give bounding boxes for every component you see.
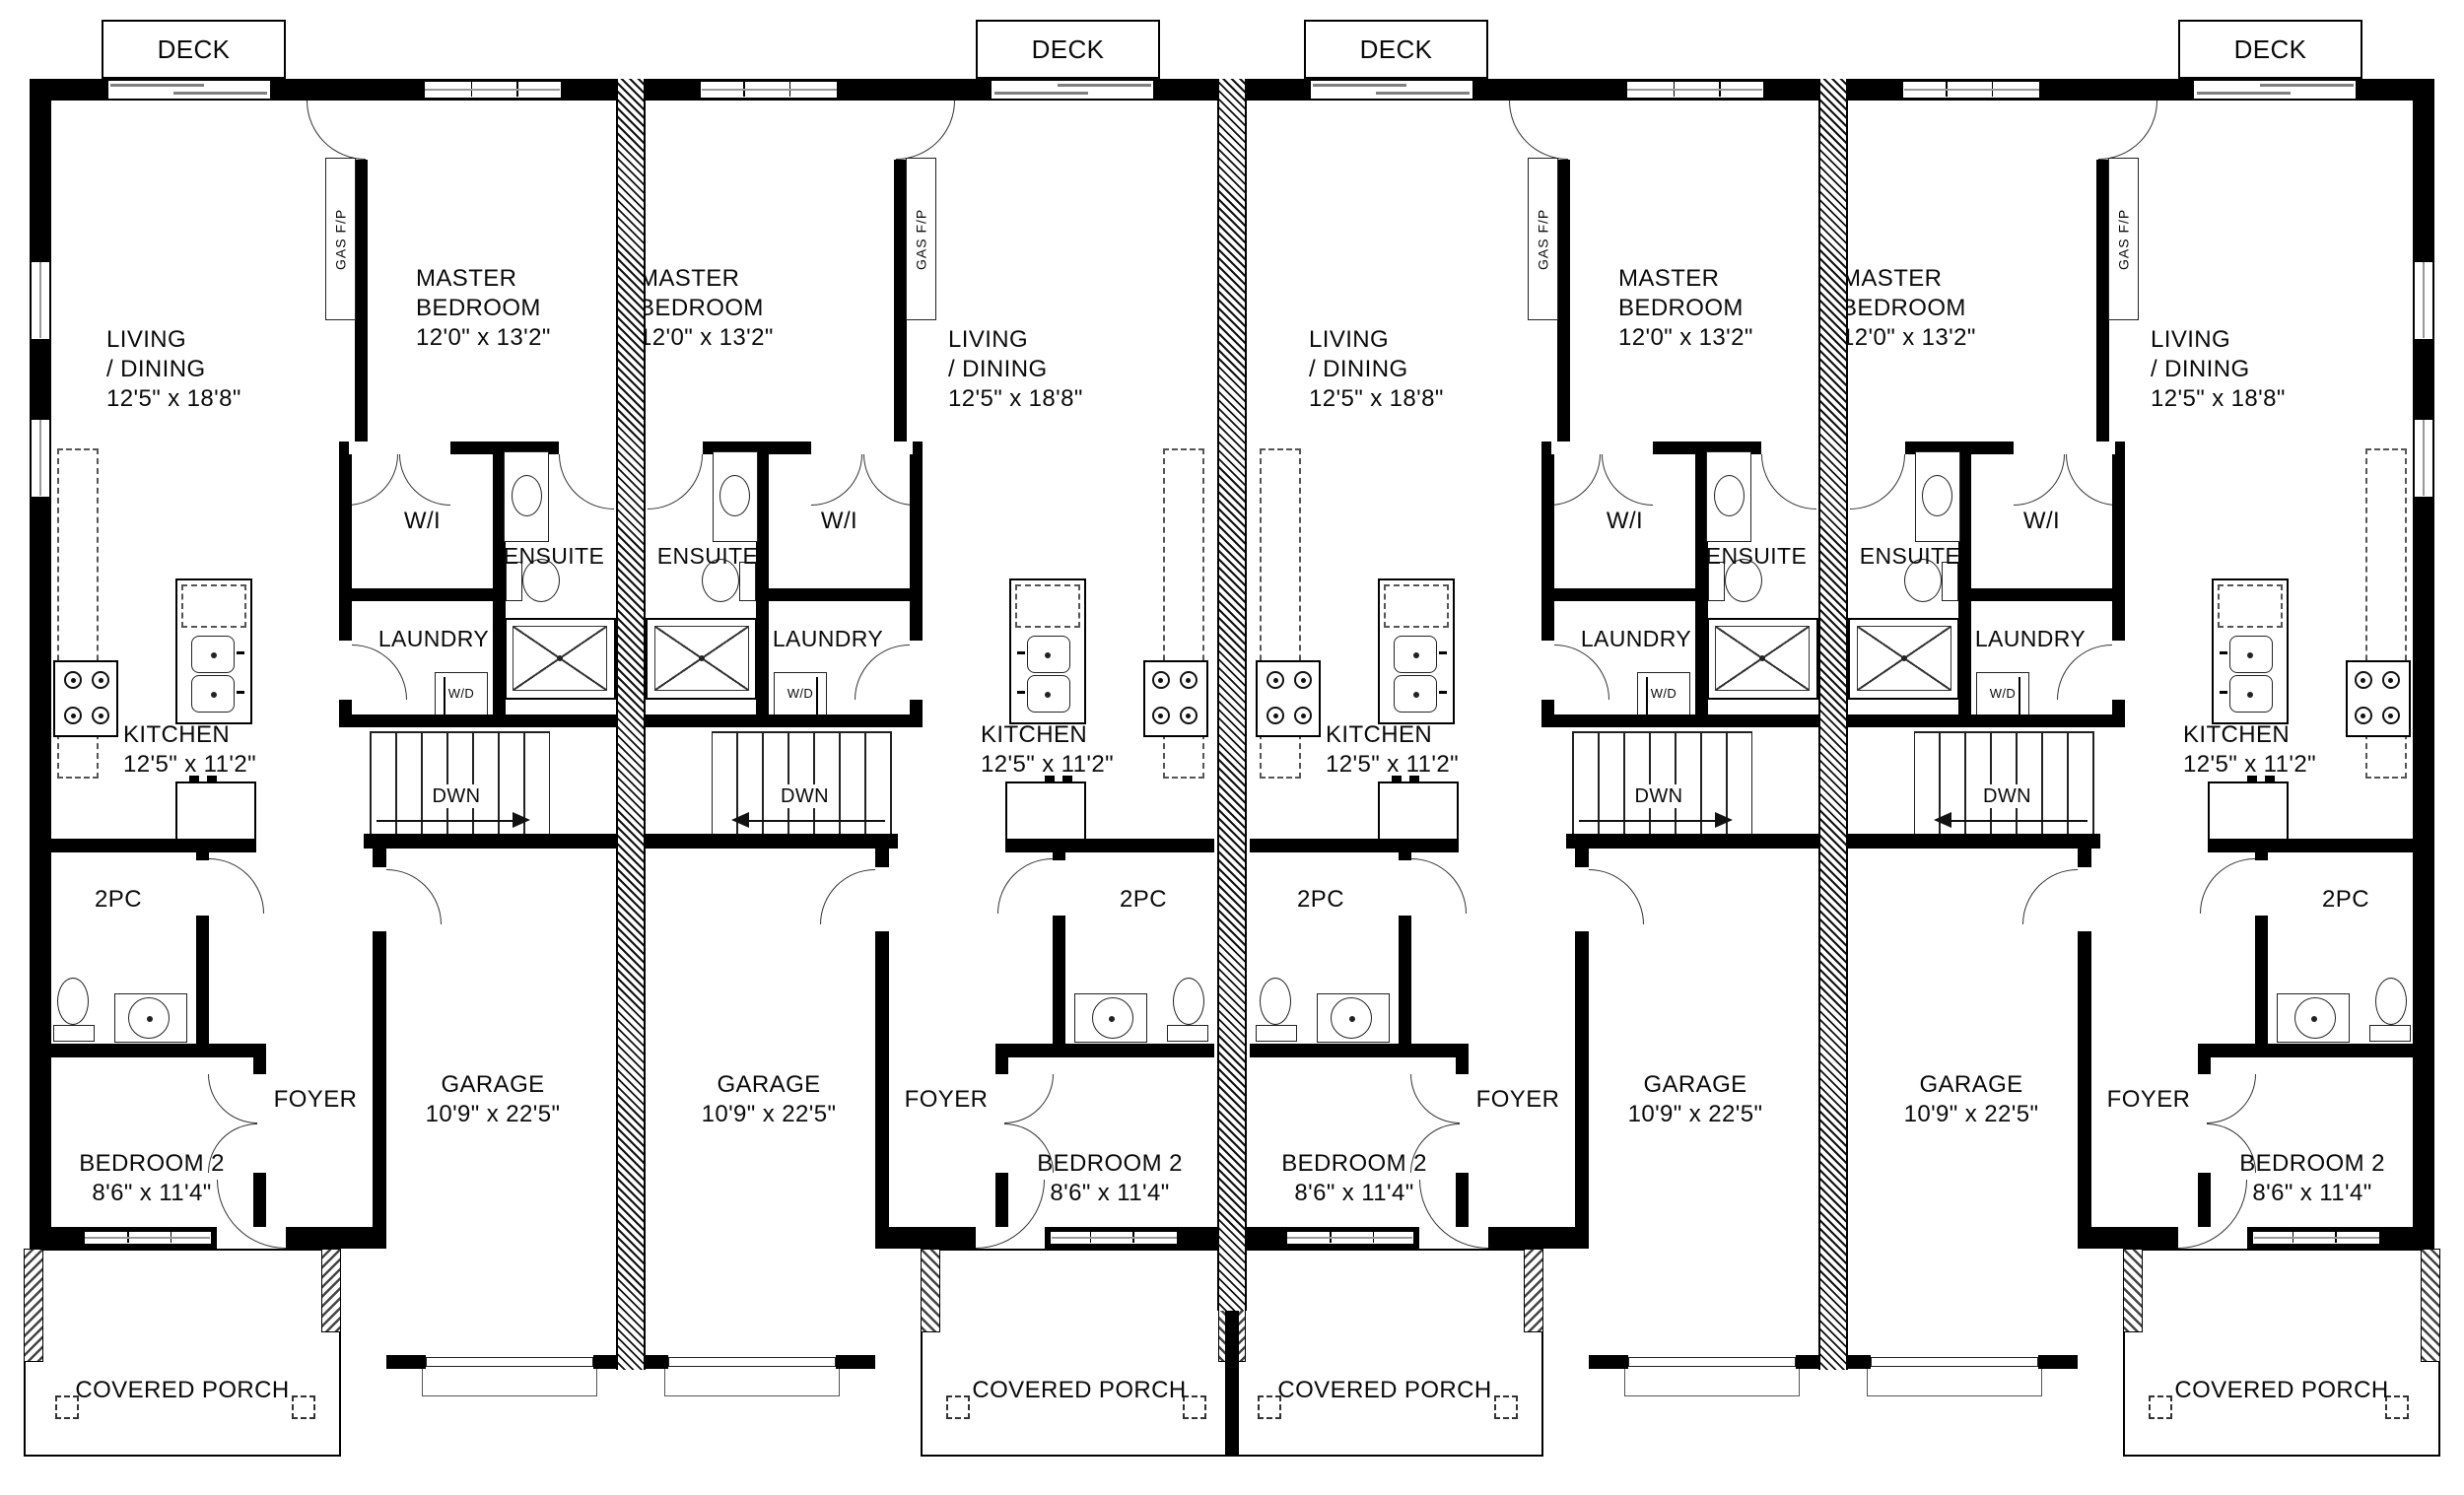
sliding-door	[108, 81, 270, 99]
sink-drain	[1045, 652, 1051, 658]
interior-wall	[646, 834, 898, 849]
room-label-text: KITCHEN	[981, 720, 1138, 750]
room-label-text: 10'9" x 22'5"	[1582, 1100, 1809, 1129]
stove-burner-dot	[99, 678, 103, 683]
door-swing-icon	[648, 454, 703, 510]
stove-burner-icon	[1294, 707, 1312, 724]
sliding-door-panel	[2197, 92, 2291, 95]
door-swing-icon	[1549, 454, 1601, 506]
room-label-ensuite: ENSUITE	[490, 541, 618, 571]
faucet-icon	[2247, 776, 2257, 781]
dwn-arrow-icon	[513, 812, 530, 828]
room-label-text: LAUNDRY	[1567, 624, 1705, 653]
room-label-text: LIVING	[106, 325, 313, 355]
faucet-icon	[1017, 691, 1025, 694]
room-label-text: ENSUITE	[490, 541, 618, 571]
room-label-wd: W/D	[435, 686, 488, 702]
room-label-living: LIVING/ DINING12'5" x 18'8"	[106, 325, 313, 414]
sink-drain	[2311, 1016, 2317, 1022]
room-label-text: BEDROOM	[416, 294, 623, 323]
room-label-wi: W/I	[1971, 507, 2112, 536]
interior-wall	[196, 916, 209, 1044]
room-label-text: / DINING	[1309, 355, 1516, 384]
room-label-text: 12'5" x 18'8"	[106, 384, 313, 414]
dwn-arrow-icon	[376, 820, 513, 822]
toilet-icon	[1167, 1025, 1208, 1042]
shower-icon	[1707, 618, 1818, 700]
room-label-text: W/D	[1976, 686, 2029, 702]
room-label-text: DECK	[102, 34, 286, 64]
door-swing-icon	[863, 454, 915, 506]
window-glass-line	[1287, 1237, 1412, 1239]
sliding-door	[1311, 81, 1472, 99]
interior-wall	[196, 852, 209, 860]
room-label-garage: GARAGE10'9" x 22'5"	[379, 1070, 606, 1129]
room-label-dwn: DWN	[1973, 784, 2042, 808]
gas-fireplace: GAS F/P	[1528, 158, 1558, 320]
gas-fireplace: GAS F/P	[325, 158, 356, 320]
room-label-text: W/I	[352, 507, 493, 536]
stove-icon	[1256, 660, 1321, 737]
room-label-text: W/D	[1637, 686, 1690, 702]
stove-burner-dot	[99, 714, 103, 718]
room-label-text: LIVING	[2151, 325, 2358, 355]
faucet-icon	[207, 776, 217, 781]
interior-wall	[1005, 839, 1214, 852]
sink-drain	[1413, 692, 1419, 698]
sink-drain	[2247, 692, 2253, 698]
faucet-icon	[1439, 651, 1447, 654]
room-label-text: MASTER	[1841, 264, 2048, 294]
window-glass-line	[85, 1237, 210, 1239]
sink-drain	[147, 1016, 153, 1022]
room-label-text: DWN	[1981, 784, 2035, 808]
porch-wall	[24, 1249, 43, 1362]
room-label-master: MASTERBEDROOM12'0" x 13'2"	[1618, 264, 1825, 353]
sink-icon	[1922, 475, 1952, 516]
shower-icon	[505, 618, 616, 700]
door-swing-icon	[820, 869, 875, 924]
covered-porch	[921, 1249, 1238, 1457]
porch-wall	[1524, 1249, 1543, 1332]
interior-wall	[2078, 849, 2091, 867]
room-label-master: MASTERBEDROOM12'0" x 13'2"	[1841, 264, 2048, 353]
room-label-text: 12'0" x 13'2"	[1841, 323, 2048, 353]
room-label-kitchen: KITCHEN12'5" x 11'2"	[2183, 720, 2341, 780]
window	[1286, 1231, 1414, 1245]
room-label-text: 2PC	[1089, 885, 1198, 915]
room-label-text: FOYER	[261, 1085, 370, 1115]
room-label-text: DECK	[1304, 34, 1488, 64]
room-label-wd: W/D	[774, 686, 827, 702]
sink-drain	[1045, 692, 1051, 698]
sink-drain	[1413, 652, 1419, 658]
room-label-wi: W/I	[1554, 507, 1695, 536]
window-glass-line	[425, 89, 560, 91]
interior-wall	[339, 454, 352, 641]
room-label-living: LIVING/ DINING12'5" x 18'8"	[948, 325, 1155, 414]
sink-icon	[2229, 675, 2273, 713]
dwn-arrow-icon	[1579, 820, 1715, 822]
shower-drain	[557, 655, 563, 661]
sink-icon	[128, 997, 170, 1039]
room-label-text: ENSUITE	[644, 541, 772, 571]
interior-wall	[995, 1057, 1008, 1074]
room-label-text: MASTER	[1618, 264, 1825, 294]
room-label-two-pc: 2PC	[1089, 885, 1198, 915]
covered-porch	[2123, 1249, 2440, 1457]
interior-wall	[339, 442, 349, 454]
sink-icon	[1027, 675, 1070, 713]
sink-icon	[191, 636, 235, 673]
sink-drain	[1109, 1016, 1115, 1022]
toilet-icon	[1173, 978, 1204, 1025]
room-label-deck: DECK	[2178, 34, 2362, 64]
room-label-text: 2PC	[1266, 885, 1375, 915]
interior-wall	[1541, 454, 1554, 641]
room-label-text: FOYER	[1464, 1085, 1572, 1115]
window	[2252, 1231, 2380, 1245]
garage-front-wall	[836, 1355, 875, 1369]
interior-wall	[2255, 916, 2268, 1044]
toilet-icon	[2375, 978, 2407, 1025]
room-label-text: W/I	[769, 507, 910, 536]
room-label-text: 12'0" x 13'2"	[416, 323, 623, 353]
room-label-porch: COVERED PORCH	[2129, 1376, 2434, 1405]
sink-drain	[2247, 652, 2253, 658]
door-swing-icon	[1004, 1074, 1054, 1123]
sliding-door-panel	[1058, 84, 1151, 87]
room-label-porch: COVERED PORCH	[30, 1376, 335, 1405]
room-label-kitchen: KITCHEN12'5" x 11'2"	[981, 720, 1138, 780]
interior-wall	[1566, 834, 1818, 849]
stove-burner-dot	[1186, 678, 1191, 683]
room-label-deck: DECK	[102, 34, 286, 64]
room-label-ensuite: ENSUITE	[644, 541, 772, 571]
sink-icon	[2229, 636, 2273, 673]
faucet-icon	[1392, 776, 1402, 781]
garage-front-wall	[1589, 1355, 1628, 1369]
room-label-wi: W/I	[769, 507, 910, 536]
interior-wall	[995, 1044, 1214, 1057]
room-label-gas-fp: GAS F/P	[907, 159, 935, 319]
sink-icon	[719, 475, 750, 516]
garage-front-wall	[1796, 1355, 1818, 1369]
interior-wall	[339, 588, 493, 601]
room-label-dwn: DWN	[1624, 784, 1693, 808]
toilet-icon	[1256, 1025, 1297, 1042]
sliding-door-panel	[1313, 84, 1406, 87]
kitchen-island	[1378, 578, 1455, 724]
room-label-foyer: FOYER	[261, 1085, 370, 1115]
interior-wall	[646, 714, 923, 727]
sliding-door	[2194, 81, 2356, 99]
room-label-text: W/D	[774, 686, 827, 702]
room-label-two-pc: 2PC	[1266, 885, 1375, 915]
driveway-apron	[664, 1369, 840, 1396]
interior-wall	[2112, 454, 2125, 641]
room-label-text: 2PC	[2292, 885, 2400, 915]
room-label-text: DWN	[779, 784, 833, 808]
stove-burner-icon	[2382, 707, 2400, 724]
room-label-text: DECK	[2178, 34, 2362, 64]
room-label-text: 12'0" x 13'2"	[1618, 323, 1825, 353]
stove-burner-dot	[2388, 678, 2393, 683]
gas-fireplace: GAS F/P	[2108, 158, 2139, 320]
garage-front-wall	[593, 1355, 616, 1369]
room-label-text: KITCHEN	[1326, 720, 1483, 750]
kitchen-island	[2212, 578, 2289, 724]
shower-drain	[1901, 655, 1907, 661]
room-label-text: W/D	[435, 686, 488, 702]
room-label-text: LIVING	[948, 325, 1155, 355]
room-label-laundry: LAUNDRY	[1961, 624, 2099, 653]
stove-burner-icon	[2355, 707, 2372, 724]
interior-wall	[1541, 588, 1695, 601]
sliding-door-panel	[173, 92, 267, 95]
stove-burner-icon	[1266, 671, 1284, 689]
window-glass-line	[702, 89, 837, 91]
door-swing-icon	[2200, 858, 2255, 914]
unit-1: DECKGAS F/PLIVING/ DINING12'5" x 18'8"MA…	[30, 20, 631, 1459]
room-label-text: BEDROOM 2	[1015, 1149, 1204, 1179]
toilet-icon	[57, 978, 89, 1025]
sliding-door-panel	[2260, 84, 2354, 87]
door-swing-icon	[2098, 101, 2157, 160]
room-label-laundry: LAUNDRY	[1567, 624, 1705, 653]
covered-porch	[24, 1249, 341, 1457]
door-swing-icon	[2014, 454, 2065, 506]
room-label-wd: W/D	[1637, 686, 1690, 702]
room-label-text: 12'0" x 13'2"	[639, 323, 846, 353]
faucet-icon	[237, 651, 244, 654]
garage-front-wall	[1848, 1355, 1871, 1369]
room-label-text: 2PC	[64, 885, 172, 915]
room-label-text: GARAGE	[1858, 1070, 2085, 1100]
stove-burner-icon	[64, 707, 82, 724]
driveway-apron	[422, 1369, 597, 1396]
interior-wall	[875, 849, 889, 867]
garage-door	[668, 1357, 836, 1367]
faucet-icon	[2220, 651, 2227, 654]
stove-burner-dot	[1158, 678, 1163, 683]
interior-wall	[1541, 714, 1818, 727]
porch-wall	[321, 1249, 341, 1332]
stove-burner-dot	[1301, 678, 1306, 683]
upper-cabinets-dashed	[2218, 584, 2283, 628]
stove-icon	[1143, 660, 1208, 737]
door-swing-icon	[997, 858, 1053, 914]
party-wall	[616, 79, 646, 1370]
garage-door	[1628, 1357, 1796, 1367]
toilet-icon	[1260, 978, 1291, 1025]
room-label-bedroom2: BEDROOM 28'6" x 11'4"	[1260, 1149, 1449, 1208]
interior-wall	[47, 1044, 266, 1057]
room-label-text: MASTER	[416, 264, 623, 294]
room-label-gas-fp: GAS F/P	[326, 159, 355, 319]
room-label-text: 12'5" x 18'8"	[2151, 384, 2358, 414]
interior-wall	[2115, 442, 2125, 454]
door-swing-icon	[1761, 454, 1816, 510]
stove-burner-icon	[1180, 671, 1198, 689]
unit-4: DECKGAS F/PLIVING/ DINING12'5" x 18'8"MA…	[1833, 20, 2434, 1459]
interior-wall	[1575, 849, 1589, 867]
sink-drain	[211, 692, 217, 698]
window	[700, 81, 838, 99]
interior-wall	[47, 839, 256, 852]
interior-wall	[1557, 160, 1570, 442]
door-swing-icon	[1410, 1074, 1460, 1123]
room-label-kitchen: KITCHEN12'5" x 11'2"	[1326, 720, 1483, 780]
covered-porch	[1226, 1249, 1543, 1457]
stove-burner-icon	[2355, 671, 2372, 689]
room-label-gas-fp: GAS F/P	[1529, 159, 1557, 319]
room-label-text: LAUNDRY	[1961, 624, 2099, 653]
dwn-arrow-icon	[731, 812, 749, 828]
sink-icon	[1331, 997, 1372, 1039]
shower-icon	[1848, 618, 1959, 700]
dwn-arrow-icon	[1934, 812, 1951, 828]
porch-wall	[2421, 1249, 2440, 1362]
room-label-foyer: FOYER	[2094, 1085, 2203, 1115]
stove-icon	[53, 660, 118, 737]
sink-icon	[1027, 636, 1070, 673]
door-swing-icon	[1411, 858, 1467, 914]
toilet-icon	[2369, 1025, 2411, 1042]
room-label-text: / DINING	[106, 355, 313, 384]
garage-front-wall	[646, 1355, 668, 1369]
stove-icon	[2346, 660, 2411, 737]
room-label-garage: GARAGE10'9" x 22'5"	[655, 1070, 882, 1129]
dwn-arrow-icon	[1715, 812, 1733, 828]
room-label-text: 12'5" x 11'2"	[981, 750, 1138, 780]
stove-burner-icon	[1180, 707, 1198, 724]
sink-icon	[512, 475, 542, 516]
door-swing-icon	[1602, 454, 1653, 506]
faucet-icon	[189, 776, 199, 781]
room-label-laundry: LAUNDRY	[759, 624, 897, 653]
kitchen-counter	[2208, 781, 2289, 841]
stove-burner-dot	[71, 714, 76, 718]
room-label-text: ENSUITE	[1692, 541, 1820, 571]
room-label-text: W/I	[1554, 507, 1695, 536]
interior-wall	[1053, 852, 1065, 860]
room-label-porch: COVERED PORCH	[1232, 1376, 1538, 1405]
room-label-text: BEDROOM 2	[2218, 1149, 2407, 1179]
room-label-text: BEDROOM	[1618, 294, 1825, 323]
room-label-foyer: FOYER	[892, 1085, 1000, 1115]
upper-cabinets-dashed	[1384, 584, 1449, 628]
dwn-arrow-icon	[1951, 820, 2088, 822]
stove-burner-icon	[1294, 671, 1312, 689]
room-label-text: FOYER	[2094, 1085, 2203, 1115]
room-label-dwn: DWN	[771, 784, 840, 808]
door-swing-icon	[1509, 101, 1568, 160]
stove-burner-dot	[1301, 714, 1306, 718]
room-label-text: BEDROOM 2	[57, 1149, 246, 1179]
room-label-two-pc: 2PC	[64, 885, 172, 915]
window	[1050, 1231, 1178, 1245]
room-label-ensuite: ENSUITE	[1692, 541, 1820, 571]
door-swing-icon	[2066, 454, 2117, 506]
stove-burner-dot	[71, 678, 76, 683]
room-label-text: COVERED PORCH	[2129, 1376, 2434, 1405]
stove-burner-icon	[92, 671, 109, 689]
sink-icon	[191, 675, 235, 713]
door-swing-icon	[2022, 869, 2078, 924]
room-label-master: MASTERBEDROOM12'0" x 13'2"	[639, 264, 846, 353]
room-label-kitchen: KITCHEN12'5" x 11'2"	[123, 720, 281, 780]
sliding-door	[992, 81, 1153, 99]
room-label-master: MASTERBEDROOM12'0" x 13'2"	[416, 264, 623, 353]
room-label-text: BEDROOM 2	[1260, 1149, 1449, 1179]
driveway-apron	[1867, 1369, 2042, 1396]
door-swing-icon	[347, 454, 398, 506]
porch-wall	[2123, 1249, 2143, 1332]
room-label-dwn: DWN	[422, 784, 491, 808]
sink-icon	[1092, 997, 1133, 1039]
faucet-icon	[2265, 776, 2275, 781]
room-label-living: LIVING/ DINING12'5" x 18'8"	[2151, 325, 2358, 414]
stove-burner-dot	[2388, 714, 2393, 718]
stove-burner-dot	[1273, 714, 1278, 718]
sink-icon	[2294, 997, 2336, 1039]
interior-wall	[1250, 839, 1459, 852]
interior-wall	[1848, 714, 2125, 727]
interior-wall	[1399, 916, 1411, 1044]
party-wall	[1818, 79, 1848, 1370]
door-swing-icon	[559, 454, 614, 510]
stove-burner-icon	[92, 707, 109, 724]
room-label-text: LAUNDRY	[365, 624, 503, 653]
room-label-text: KITCHEN	[123, 720, 281, 750]
door-swing-icon	[1589, 869, 1644, 924]
kitchen-island	[1009, 578, 1086, 724]
interior-wall	[2198, 1057, 2211, 1074]
driveway-apron	[1624, 1369, 1800, 1396]
dwn-arrow-icon	[749, 820, 885, 822]
faucet-icon	[2220, 691, 2227, 694]
interior-wall	[913, 442, 923, 454]
stove-burner-dot	[1186, 714, 1191, 718]
room-label-text: 10'9" x 22'5"	[655, 1100, 882, 1129]
room-label-ensuite: ENSUITE	[1846, 541, 1974, 571]
room-label-wd: W/D	[1976, 686, 2029, 702]
room-label-text: GARAGE	[1582, 1070, 1809, 1100]
unit-2: DECKGAS F/PLIVING/ DINING12'5" x 18'8"MA…	[631, 20, 1232, 1459]
room-label-bedroom2: BEDROOM 28'6" x 11'4"	[57, 1149, 246, 1208]
window-glass-line	[1904, 89, 2039, 91]
interior-wall	[2198, 1044, 2417, 1057]
faucet-icon	[1439, 691, 1447, 694]
party-wall	[1217, 79, 1247, 1311]
garage-door	[426, 1357, 593, 1367]
interior-wall	[910, 454, 923, 641]
interior-wall	[1399, 852, 1411, 860]
room-label-text: 12'5" x 18'8"	[948, 384, 1155, 414]
window	[84, 1231, 212, 1245]
floor-plan: DECKGAS F/PLIVING/ DINING12'5" x 18'8"MA…	[0, 0, 2464, 1495]
sink-drain	[211, 652, 217, 658]
sink-drain	[1349, 1016, 1355, 1022]
gas-fireplace: GAS F/P	[906, 158, 936, 320]
stove-burner-icon	[1266, 707, 1284, 724]
kitchen-counter	[1378, 781, 1459, 841]
kitchen-counter	[175, 781, 256, 841]
stove-burner-icon	[1152, 707, 1170, 724]
interior-wall	[1053, 916, 1065, 1044]
stove-burner-dot	[2361, 714, 2365, 718]
